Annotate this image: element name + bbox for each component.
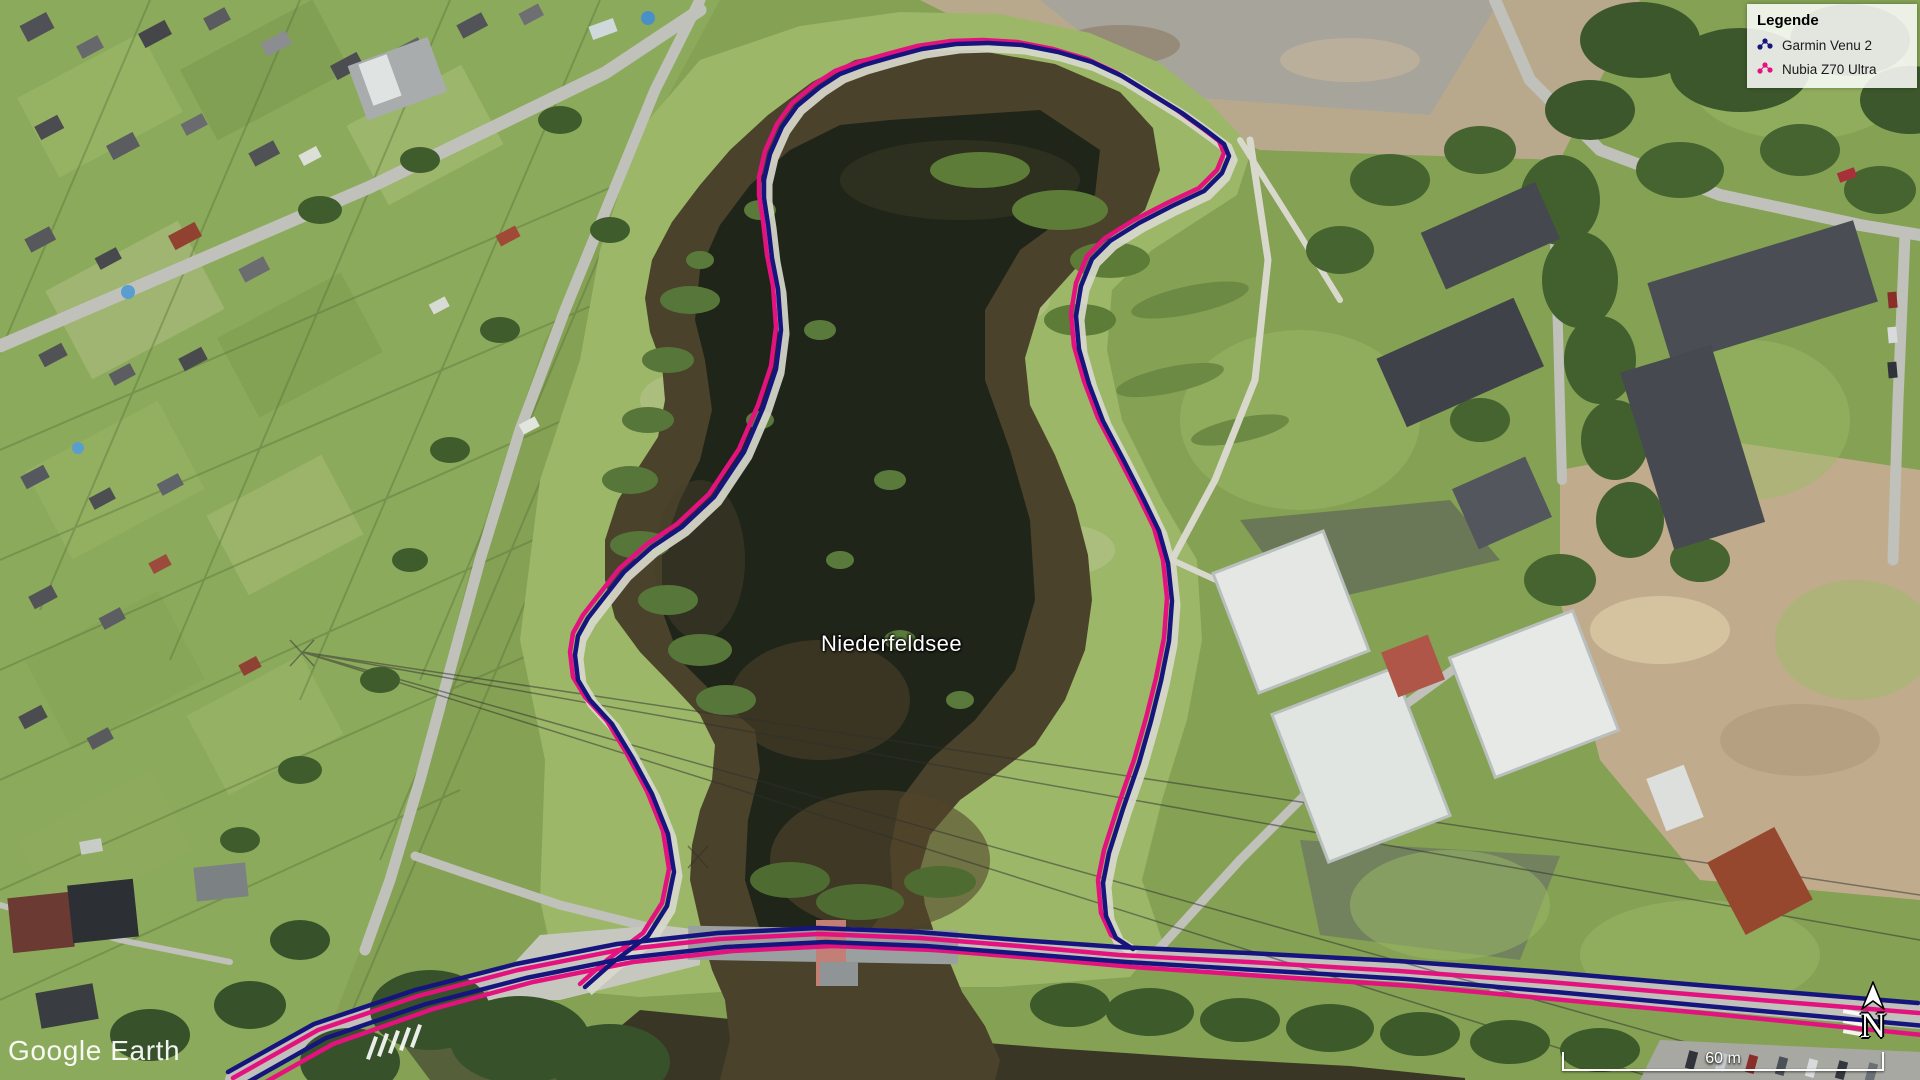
legend-item-garmin: Garmin Venu 2 — [1757, 37, 1907, 53]
track-dots-icon — [1757, 61, 1773, 77]
satellite-map[interactable] — [0, 0, 1920, 1080]
legend-item-nubia: Nubia Z70 Ultra — [1757, 61, 1907, 77]
legend-title: Legende — [1757, 12, 1907, 29]
track-dots-icon — [1757, 37, 1773, 53]
legend-item-label: Nubia Z70 Ultra — [1782, 62, 1877, 77]
legend-panel: Legende Garmin Venu 2 Nubia Z70 Ultra — [1747, 4, 1917, 88]
legend-item-label: Garmin Venu 2 — [1782, 38, 1872, 53]
